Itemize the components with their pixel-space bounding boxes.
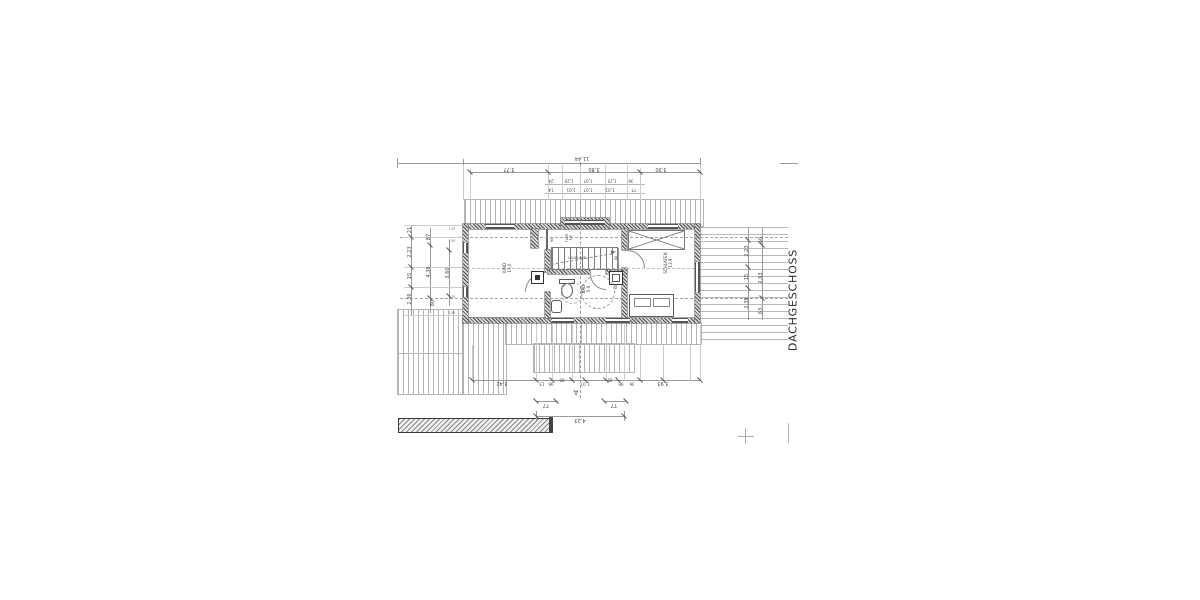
dimension-line xyxy=(690,345,691,381)
dimension-label: 15 xyxy=(408,273,414,279)
dimension-line xyxy=(572,325,573,381)
dimension-label: 2,23 xyxy=(408,246,414,257)
room-axis-line xyxy=(467,268,695,269)
window-top-left xyxy=(486,224,514,229)
annotation-label: 1,50 xyxy=(449,311,456,314)
annotation-label: 1,50 xyxy=(449,239,456,242)
headroom-circle-small xyxy=(561,282,583,304)
dimension-label: 3,93 xyxy=(657,379,668,385)
dimension-label: 3,60 xyxy=(446,267,452,278)
dimension-label: 24 xyxy=(548,178,553,183)
wall-kind-flur-thin xyxy=(546,229,548,250)
dimension-label: 36 xyxy=(629,381,634,386)
washbasin xyxy=(551,300,562,313)
wall-bottom xyxy=(463,318,700,323)
section-bar xyxy=(398,418,552,433)
void-cross-box xyxy=(628,230,685,250)
dimension-label: 1,01 xyxy=(606,187,615,192)
dimension-label: 3,77 xyxy=(503,165,514,171)
annotation-label: 1,50 xyxy=(449,295,456,298)
wall-hall-schlafen-upper xyxy=(622,229,627,250)
window-bottom-2 xyxy=(606,318,630,323)
dimension-label: 3,42 xyxy=(496,379,507,385)
door-arc-schlafen xyxy=(627,250,645,268)
dimension-label: 1,25 xyxy=(565,178,574,183)
dimension-label: 4,38 xyxy=(427,266,433,277)
dimension-label: 2,38 xyxy=(745,297,751,308)
dimension-line xyxy=(562,165,563,200)
dimension-line xyxy=(472,345,473,381)
dimension-label: 1,07 xyxy=(584,187,593,192)
dimension-label: 1,07 xyxy=(584,178,593,183)
dimension-label: 96 xyxy=(548,381,553,386)
window-left-2 xyxy=(463,287,468,297)
dimension-line xyxy=(606,325,607,381)
dimension-label: 80 xyxy=(431,300,437,306)
stair-arrow-icon xyxy=(611,250,617,255)
chimney-core xyxy=(535,275,540,280)
dimension-label: 15 xyxy=(745,274,751,280)
dimension-label: 13 xyxy=(539,381,544,386)
dimension-line xyxy=(545,184,645,185)
wall-kind-bad-lower xyxy=(545,292,550,318)
window-dormer xyxy=(565,220,605,225)
roof-plane-apron xyxy=(533,343,635,373)
dimension-label: 2,63 xyxy=(759,272,765,283)
dimension-label: A xyxy=(574,388,579,396)
bed-pillow-1 xyxy=(634,298,651,307)
dimension-label: 89 xyxy=(559,377,564,382)
room-label-kind: KIND 13,0 xyxy=(503,263,513,273)
window-top-right xyxy=(648,224,678,229)
dimension-line xyxy=(700,325,701,381)
dimension-line xyxy=(463,165,464,200)
wall-left xyxy=(463,224,468,323)
roof-plane-left-a xyxy=(397,309,464,395)
dimension-label: 2,23 xyxy=(745,245,751,256)
dimension-line xyxy=(624,325,625,381)
dimension-label: 21 xyxy=(408,227,414,233)
annotation-label: 80 xyxy=(614,256,618,260)
dimension-label: 89 xyxy=(607,377,612,382)
roof-plane-bottom xyxy=(505,322,702,345)
section-bar-cap xyxy=(549,417,553,433)
floorplan-canvas: KIND 13,0 SCHLAFEN 13,9 BAD 5,9 FLUR 3,8… xyxy=(0,0,1200,600)
dimension-line xyxy=(605,165,606,200)
dimension-line xyxy=(552,325,553,381)
window-bottom-3 xyxy=(672,318,688,323)
dimension-label: 63 xyxy=(759,308,765,314)
dimension-line xyxy=(470,172,700,173)
dimension-label: 3,30 xyxy=(655,165,666,171)
dimension-label: 1,25 xyxy=(608,178,617,183)
dimension-label: 77 xyxy=(543,401,549,407)
room-label-bad: BAD 5,9 xyxy=(582,285,592,294)
dimension-line xyxy=(580,165,581,200)
dimension-label: 60 xyxy=(759,237,765,243)
dimension-line xyxy=(545,193,645,194)
dimension-label: 1,01 xyxy=(567,187,576,192)
dimension-line xyxy=(536,325,537,381)
dimension-label: 4,23 xyxy=(574,416,585,422)
dimension-label: 14 xyxy=(548,187,553,192)
annotation-label: LAUFLINIE xyxy=(568,256,586,260)
window-bottom-1 xyxy=(552,318,574,323)
roof-plane-right xyxy=(700,227,788,340)
dimension-label: 3,80 xyxy=(588,165,599,171)
room-label-flur: FLUR 3,8 xyxy=(565,234,573,243)
dimension-line xyxy=(663,345,664,381)
dimension-line xyxy=(780,163,798,164)
annotation-label: 1,50 xyxy=(449,227,456,230)
wall-flur-bad-left xyxy=(548,270,590,274)
dimension-label: 96 xyxy=(618,381,623,386)
dimension-line xyxy=(640,345,641,381)
dimension-label: 77 xyxy=(631,187,636,192)
dimension-line xyxy=(397,353,462,354)
dimension-line xyxy=(745,428,746,444)
dimension-line xyxy=(618,248,619,270)
bed-pillow-2 xyxy=(653,298,670,307)
wall-stub-kind xyxy=(531,229,538,248)
dimension-label: 2,36 xyxy=(408,293,414,304)
floor-title-label: DACHGESCHOSS xyxy=(787,249,800,351)
window-left-1 xyxy=(463,243,468,253)
dimension-line xyxy=(404,315,462,316)
annotation-label: 80 xyxy=(614,285,618,289)
bath-shaft-core xyxy=(612,274,620,282)
dimension-label: 11,44 xyxy=(575,154,589,160)
room-label-schlafen: SCHLAFEN 13,9 xyxy=(664,252,674,273)
dimension-line xyxy=(700,165,701,200)
dimension-line xyxy=(397,158,398,168)
dimension-label: 87 xyxy=(427,234,433,240)
dimension-line xyxy=(397,163,700,164)
dimension-label: 36 xyxy=(628,178,633,183)
dimension-line xyxy=(788,423,789,443)
dimension-label: 77 xyxy=(611,401,617,407)
dimension-line xyxy=(738,436,754,437)
dimension-label: 1,07 xyxy=(581,381,590,386)
window-right-1 xyxy=(695,262,700,292)
annotation-label: 90 xyxy=(550,238,554,242)
